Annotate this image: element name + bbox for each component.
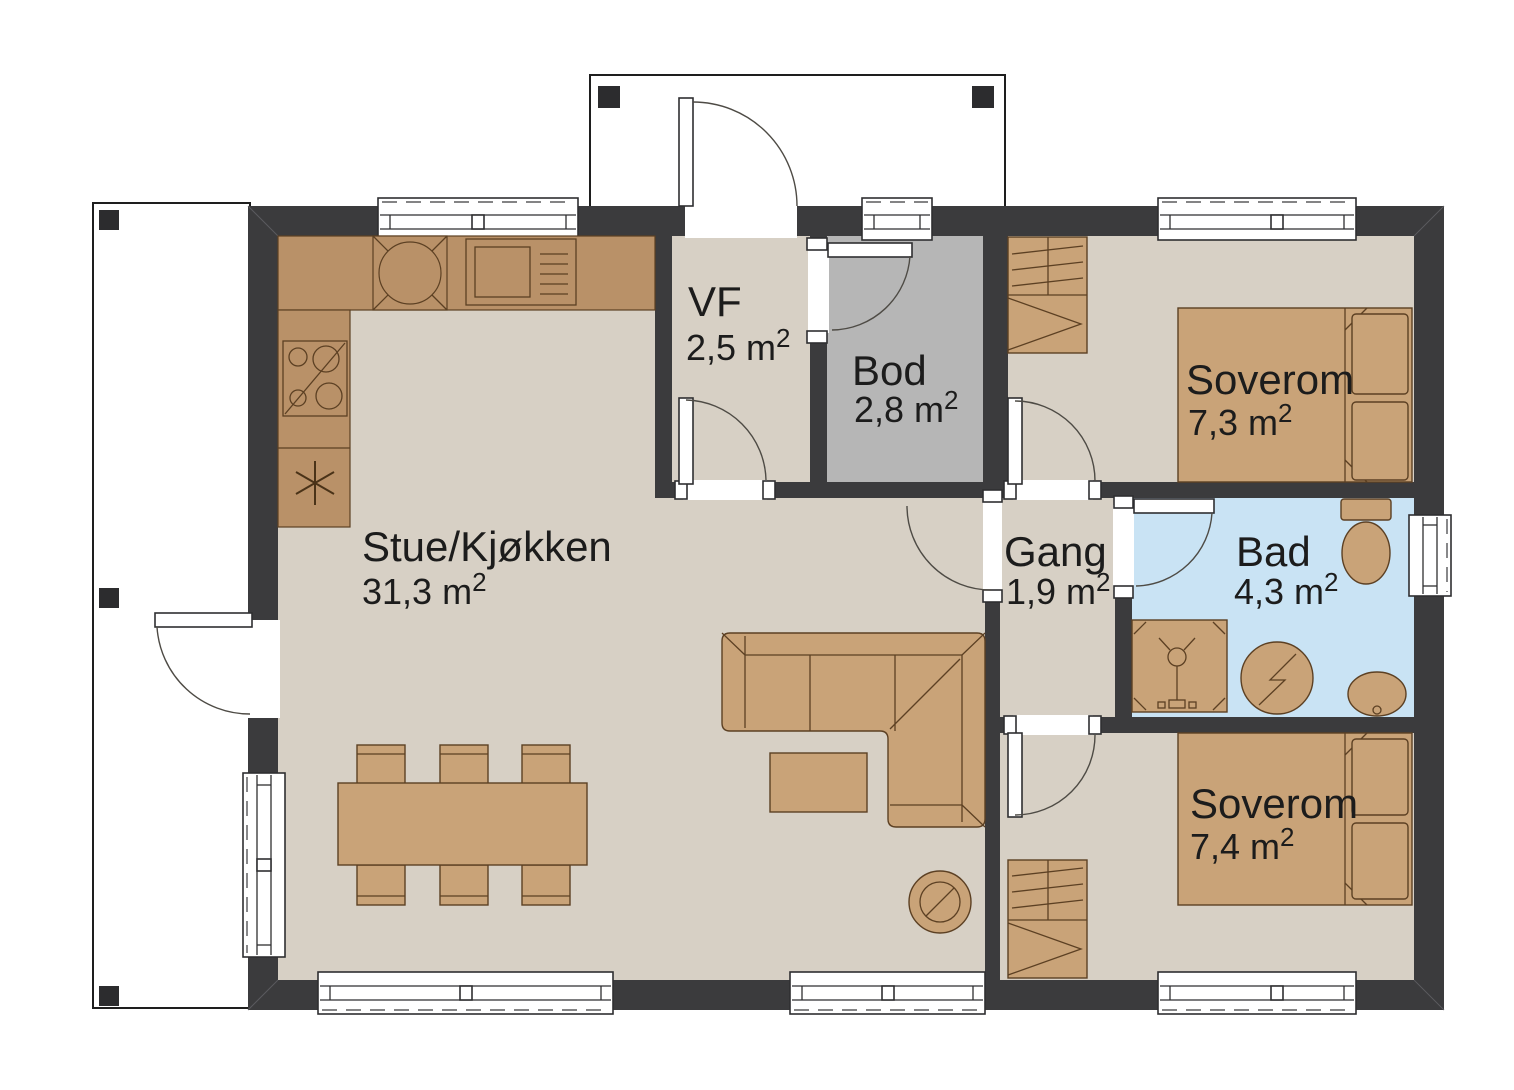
wood-stove-icon [909, 871, 971, 933]
pillow [1352, 314, 1408, 394]
floor-plan-page: Stue/Kjøkken 31,3 m2 VF 2,5 m2 Bod 2,8 m… [0, 0, 1514, 1090]
dining-chair [357, 745, 405, 785]
pillow [1352, 823, 1408, 899]
window-living-2 [790, 972, 985, 1014]
soverom2-door-leaf [1008, 733, 1022, 817]
room-label-gang: Gang 1,9 m2 [1004, 528, 1111, 612]
toilet-icon [1341, 499, 1391, 584]
room-area: 4,3 m2 [1234, 567, 1339, 612]
room-name: VF [688, 278, 742, 325]
room-area: 7,4 m2 [1190, 822, 1295, 867]
dining-table [338, 783, 587, 865]
dining-chair [357, 865, 405, 905]
porch-post-icon [972, 86, 994, 108]
window-kitchen [378, 198, 578, 240]
wardrobe-soverom2 [1008, 860, 1087, 978]
terrace-post-icon [99, 588, 119, 608]
window-bad [1409, 515, 1451, 596]
soverom1-door-leaf [1008, 398, 1022, 484]
wash-basin-icon [1348, 672, 1406, 716]
pillow [1352, 402, 1408, 480]
room-area: 2,5 m2 [686, 323, 791, 368]
vf-door-leaf [679, 398, 693, 484]
room-area: 1,9 m2 [1006, 567, 1111, 612]
terrace-post-icon [99, 210, 119, 230]
porch-post-icon [598, 86, 620, 108]
room-name: Bad [1236, 528, 1311, 575]
entrance-door-leaf [679, 98, 693, 206]
room-name: Bod [852, 347, 927, 394]
room-area: 31,3 m2 [362, 567, 487, 612]
shower-icon [1132, 620, 1227, 712]
window-soverom2 [1158, 972, 1356, 1014]
room-area: 2,8 m2 [854, 385, 959, 430]
dining-chair [440, 745, 488, 785]
pillow [1352, 739, 1408, 815]
dining-set [338, 745, 587, 905]
exterior-wall-right [1414, 206, 1444, 1010]
room-name: Soverom [1186, 356, 1354, 403]
kitchen-sink-icon [373, 236, 447, 310]
coffee-table [770, 753, 867, 812]
wall-vf-left [655, 236, 672, 498]
washing-machine-icon [1241, 642, 1313, 714]
window-living-left [243, 773, 285, 957]
bod-door-leaf [828, 243, 912, 257]
room-name: Gang [1004, 528, 1107, 575]
entrance-porch [590, 75, 1005, 208]
dining-chair [522, 745, 570, 785]
room-name: Soverom [1190, 780, 1358, 827]
room-name: Stue/Kjøkken [362, 523, 612, 570]
bad-door-leaf [1134, 499, 1214, 513]
wall-bod-soverom1 [983, 236, 1008, 498]
floor-plan-drawing: Stue/Kjøkken 31,3 m2 VF 2,5 m2 Bod 2,8 m… [0, 0, 1514, 1090]
terrace-door-leaf [155, 613, 252, 627]
terrace-post-icon [99, 986, 119, 1006]
dining-chair [440, 865, 488, 905]
window-soverom1 [1158, 198, 1356, 240]
terrace [93, 203, 250, 1008]
wardrobe-soverom1 [1008, 237, 1087, 353]
window-living-1 [318, 972, 613, 1014]
room-area: 7,3 m2 [1188, 398, 1293, 443]
dining-chair [522, 865, 570, 905]
window-bod [862, 198, 932, 240]
